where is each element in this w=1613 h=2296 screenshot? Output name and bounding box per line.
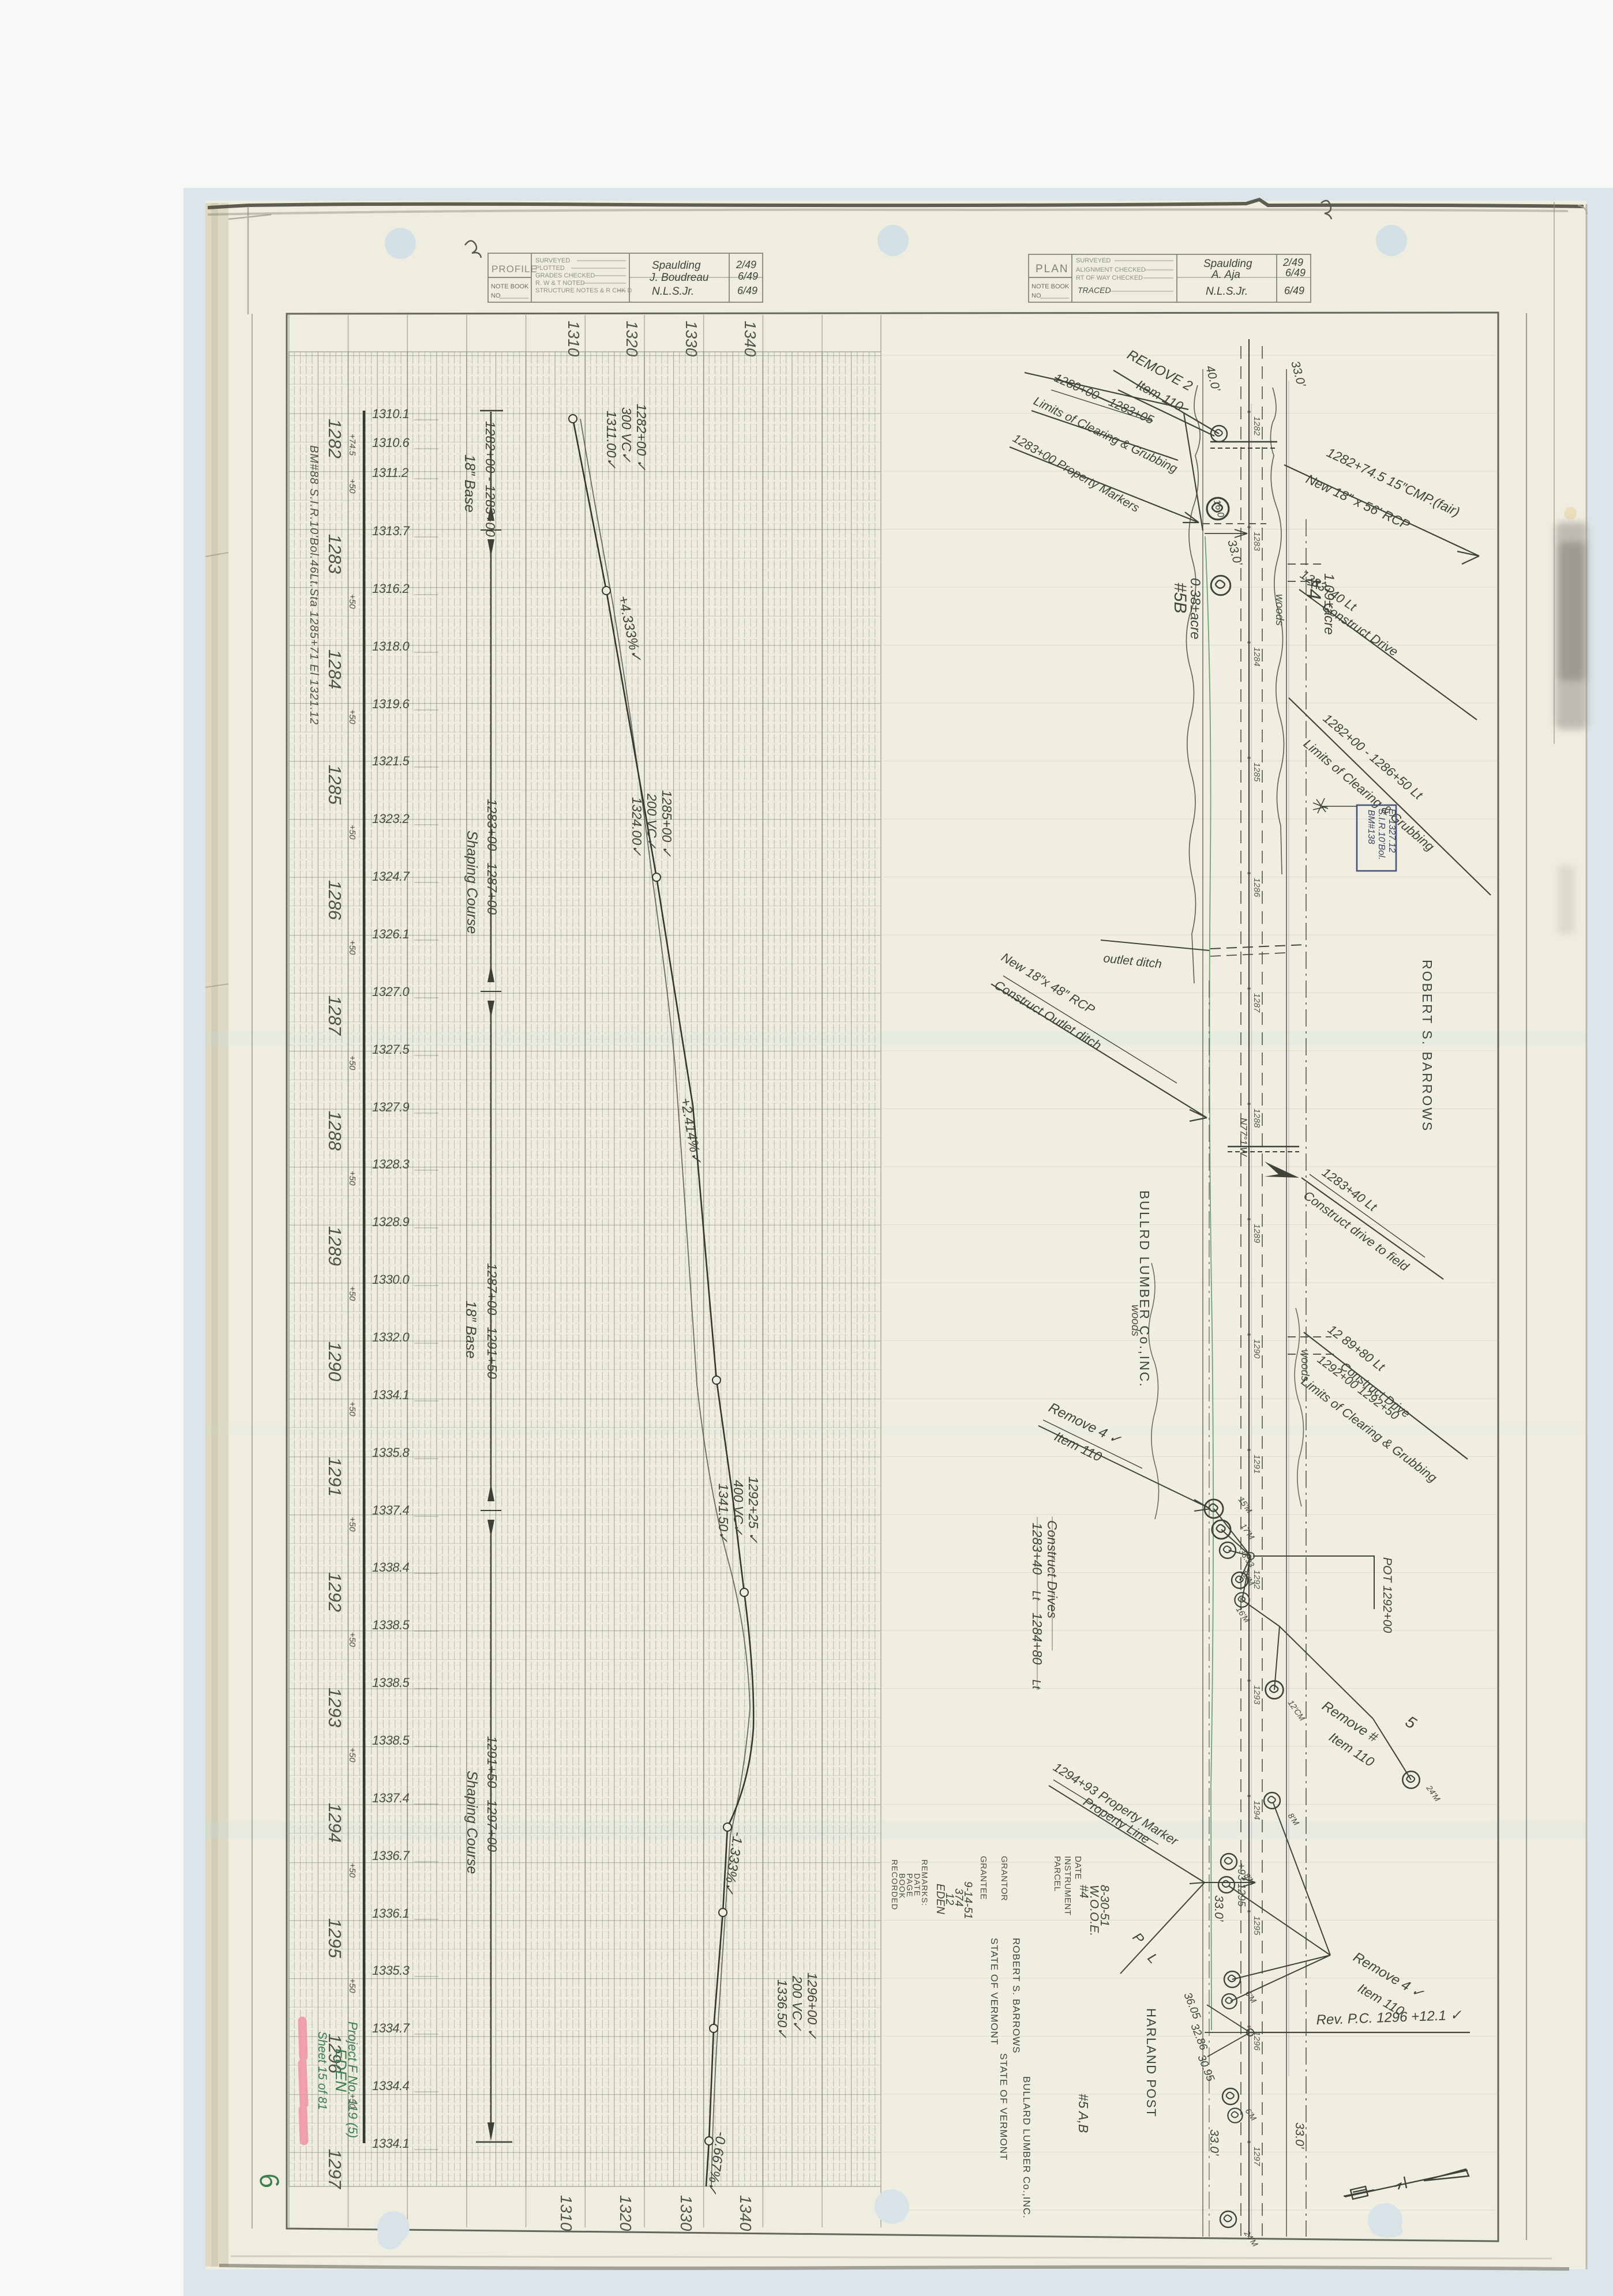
svg-text:GRANTEE: GRANTEE	[978, 1856, 988, 1900]
svg-text:1336.7: 1336.7	[372, 1848, 410, 1863]
svg-text:+50: +50	[347, 709, 357, 724]
svg-text:1294: 1294	[1252, 1801, 1262, 1820]
svg-text:STATE OF VERMONT: STATE OF VERMONT	[998, 2053, 1009, 2160]
svg-text:Spaulding: Spaulding	[652, 260, 701, 272]
svg-text:1336.50✓: 1336.50✓	[775, 1979, 790, 2038]
svg-text:1282: 1282	[1252, 416, 1262, 436]
svg-text:1297: 1297	[325, 2149, 345, 2190]
svg-text:1335.3: 1335.3	[372, 1963, 410, 1978]
svg-text:1338.5: 1338.5	[372, 1618, 410, 1632]
svg-text:El 1327.12: El 1327.12	[1387, 809, 1397, 853]
svg-text:1285: 1285	[1252, 762, 1262, 782]
svg-text:S.I.R.10’Bol.: S.I.R.10’Bol.	[1376, 809, 1386, 860]
svg-text:1338.5: 1338.5	[372, 1675, 410, 1690]
svg-text:1334.1: 1334.1	[372, 2136, 409, 2151]
svg-text:+50: +50	[347, 1748, 357, 1763]
svg-text:SURVEYED: SURVEYED	[535, 257, 570, 264]
svg-text:J. Boudreau: J. Boudreau	[649, 272, 709, 284]
svg-text:6/49: 6/49	[1284, 285, 1304, 296]
svg-text:Project F No. 119 (5): Project F No. 119 (5)	[346, 2021, 360, 2138]
svg-text:1320: 1320	[623, 321, 641, 357]
svg-text:POT 1292+00: POT 1292+00	[1381, 1557, 1394, 1633]
svg-text:1289: 1289	[325, 1226, 345, 1266]
svg-text:1292: 1292	[325, 1572, 345, 1612]
svg-text:1324.00✓: 1324.00✓	[629, 797, 644, 856]
svg-text:HARLAND P‌OS‌T: HARLAND P‌OS‌T	[1144, 2008, 1158, 2117]
svg-text:1291: 1291	[1252, 1455, 1262, 1474]
svg-text:BM#1‌38: BM#1‌38	[1366, 810, 1376, 844]
svg-text:1.09±acre: 1.09±acre	[1321, 573, 1337, 635]
svg-text:+74.5: +74.5	[347, 434, 357, 456]
svg-text:+50: +50	[347, 1171, 357, 1186]
svg-text:1295: 1295	[325, 1918, 345, 1959]
svg-text:1335.8: 1335.8	[372, 1445, 410, 1460]
svg-text:8-30-51: 8-30-51	[1098, 1885, 1111, 1926]
svg-text:Shaping Course: Shaping Course	[464, 1771, 480, 1874]
svg-text:Lt: Lt	[1030, 1679, 1042, 1690]
svg-text:1283+00 - 1287+00: 1283+00 - 1287+00	[485, 799, 500, 915]
svg-text:Sheet 15 of 81: Sheet 15 of 81	[316, 2031, 329, 2110]
svg-text:1337.4: 1337.4	[372, 1503, 410, 1517]
svg-text:1287: 1287	[325, 995, 345, 1036]
svg-text:1282: 1282	[325, 419, 345, 459]
svg-text:1338.4: 1338.4	[372, 1560, 410, 1574]
svg-text:200 VC✓: 200 VC✓	[790, 1975, 805, 2031]
svg-text:1310: 1310	[565, 321, 583, 357]
svg-text:1326.1: 1326.1	[372, 927, 409, 941]
svg-text:1330: 1330	[677, 2195, 695, 2231]
svg-text:ROBERT S. BARROWS: ROBERT S. BARROWS	[1011, 1938, 1022, 2054]
svg-text:1320: 1320	[617, 2195, 635, 2231]
svg-text:1289: 1289	[1252, 1224, 1262, 1243]
svg-text:TRACED: TRACED	[1078, 285, 1111, 295]
svg-text:6/49: 6/49	[1285, 267, 1306, 279]
svg-text:1328.9: 1328.9	[372, 1215, 410, 1229]
svg-text:GRANTOR: GRANTOR	[999, 1856, 1009, 1901]
svg-text:400 VC✓: 400 VC✓	[731, 1480, 746, 1535]
svg-text:1337.4: 1337.4	[372, 1791, 410, 1805]
svg-text:1340: 1340	[737, 2195, 755, 2231]
svg-text:BULLARD LUMBER Co.,INC.: BULLARD LUMBER Co.,INC.	[1021, 2076, 1032, 2219]
svg-text:+93 1295: +93 1295	[1236, 1863, 1247, 1907]
svg-text:1310.6: 1310.6	[372, 435, 410, 450]
svg-text:BUL‌L‌RD LUMBER Co.,INC.: BUL‌L‌RD LUMBER Co.,INC.	[1137, 1190, 1152, 1388]
svg-text:1310.1: 1310.1	[372, 407, 409, 421]
svg-text:1327.9: 1327.9	[372, 1100, 410, 1114]
svg-text:1327.5: 1327.5	[372, 1042, 410, 1057]
svg-text:1313.7: 1313.7	[372, 524, 410, 538]
svg-text:1291+50 - 1297+00: 1291+50 - 1297+00	[485, 1736, 500, 1852]
svg-text:1284: 1284	[1252, 647, 1262, 666]
svg-text:1295: 1295	[1252, 1916, 1262, 1936]
svg-text:1290: 1290	[1252, 1339, 1262, 1359]
svg-text:1330.0: 1330.0	[372, 1272, 410, 1287]
svg-text:1287+00 - 1291+50: 1287+00 - 1291+50	[485, 1263, 500, 1379]
svg-text:6/49: 6/49	[738, 270, 758, 282]
svg-text:6/49: 6/49	[737, 285, 757, 296]
svg-text:PROFILE: PROFILE	[492, 264, 538, 275]
svg-text:#5 A,B: #5 A,B	[1076, 2094, 1091, 2133]
svg-text:woods: woods	[1273, 594, 1285, 626]
svg-text:+50: +50	[347, 1863, 357, 1878]
svg-text:1296+00 ✓: 1296+00 ✓	[805, 1972, 820, 2039]
svg-text:2/49: 2/49	[1282, 257, 1303, 268]
svg-text:1290: 1290	[325, 1341, 345, 1381]
svg-text:1319.6: 1319.6	[372, 697, 410, 711]
svg-text:PLOTTED: PLOTTED	[535, 265, 565, 272]
svg-text:1336.1: 1336.1	[372, 1906, 409, 1921]
svg-text:PARCEL: PARCEL	[1052, 1856, 1062, 1892]
svg-text:1334.1: 1334.1	[372, 1388, 409, 1402]
svg-text:1282+00 ✓: 1282+00 ✓	[634, 404, 649, 471]
svg-text:1324.7: 1324.7	[372, 869, 410, 884]
svg-text:A. Aja: A. Aja	[1211, 269, 1240, 281]
svg-text:1287: 1287	[1252, 993, 1262, 1013]
svg-text:NOTE BOOK: NOTE BOOK	[491, 283, 529, 290]
svg-text:1282+00 - 1283+00: 1282+00 - 1283+00	[483, 421, 498, 537]
svg-text:NO: NO	[491, 292, 501, 299]
svg-text:GRADES CHECKED: GRADES CHECKED	[535, 272, 595, 279]
svg-text:1311.2: 1311.2	[372, 465, 408, 480]
svg-text:1334.7: 1334.7	[372, 2021, 410, 2035]
svg-text:18″ Base: 18″ Base	[463, 1301, 479, 1359]
svg-text:N.L.S.Jr.: N.L.S.Jr.	[652, 285, 694, 298]
svg-text:0.38±acre: 0.38±acre	[1187, 578, 1203, 640]
svg-text:R. W & T NOTED: R. W & T NOTED	[535, 280, 585, 287]
svg-text:+50: +50	[347, 1632, 357, 1647]
svg-text:2/49: 2/49	[736, 259, 756, 270]
svg-text:1297: 1297	[1252, 2147, 1262, 2166]
svg-text:1291: 1291	[325, 1457, 345, 1497]
svg-text:1330: 1330	[682, 321, 700, 357]
svg-text:1310: 1310	[557, 2195, 575, 2231]
svg-text:1341.50✓: 1341.50✓	[716, 1483, 731, 1542]
svg-text:200 VC✓: 200 VC✓	[644, 793, 659, 849]
svg-text:ALIGNMENT CHECKED: ALIGNMENT CHECKED	[1076, 266, 1146, 273]
svg-text:1283: 1283	[1252, 532, 1262, 551]
svg-text:+50: +50	[347, 1517, 357, 1532]
svg-text:INSTRUMENT: INSTRUMENT	[1063, 1856, 1072, 1915]
svg-text:1292+25 ✓: 1292+25 ✓	[746, 1476, 761, 1543]
svg-text:N77°1'W: N77°1'W	[1238, 1118, 1249, 1158]
svg-text:Spaulding: Spaulding	[1203, 258, 1252, 270]
svg-text:+50: +50	[347, 940, 357, 955]
svg-text:1318.0: 1318.0	[372, 639, 410, 653]
svg-text:1293: 1293	[325, 1688, 345, 1727]
svg-text:Lt: Lt	[1030, 1591, 1042, 1601]
svg-text:1311.00✓: 1311.00✓	[604, 411, 619, 469]
svg-text:N.L.S.Jr.: N.L.S.Jr.	[1206, 285, 1248, 298]
svg-text:+50: +50	[347, 825, 357, 840]
svg-text:NO: NO	[1031, 292, 1041, 299]
svg-text:300 VC✓: 300 VC✓	[619, 407, 634, 463]
svg-text:1328.3: 1328.3	[372, 1157, 410, 1171]
svg-text:1286: 1286	[1252, 878, 1262, 897]
svg-text:+50: +50	[347, 1401, 357, 1416]
svg-text:1327.0: 1327.0	[372, 984, 410, 999]
svg-text:33.0’: 33.0’	[1293, 2122, 1306, 2149]
svg-text:1340: 1340	[741, 321, 759, 357]
svg-text:1286: 1286	[325, 880, 345, 920]
svg-text:33.0’: 33.0’	[1207, 2129, 1221, 2156]
svg-text:1316.2: 1316.2	[372, 581, 410, 596]
svg-text:Shaping Course: Shaping Course	[464, 831, 480, 934]
svg-text:1332.0: 1332.0	[372, 1330, 410, 1344]
svg-text:33.0’: 33.0’	[1212, 1895, 1225, 1922]
svg-text:REMARKS:: REMARKS:	[920, 1859, 929, 1906]
svg-text:#5B: #5B	[1171, 583, 1190, 613]
svg-text:NOTE BOOK: NOTE BOOK	[1031, 283, 1070, 290]
svg-text:+50: +50	[347, 479, 357, 494]
svg-text:18″ Base: 18″ Base	[462, 454, 478, 513]
svg-text:1321.5: 1321.5	[372, 754, 410, 768]
svg-text:1334.4: 1334.4	[372, 2079, 410, 2093]
svg-text:RT OF WAY CHECKED: RT OF WAY CHECKED	[1076, 275, 1143, 281]
svg-text:1284: 1284	[325, 649, 345, 689]
svg-text:+50: +50	[347, 1055, 357, 1070]
svg-text:1294: 1294	[325, 1803, 345, 1843]
svg-text:1285+00 ✓: 1285+00 ✓	[659, 790, 674, 857]
svg-text:1338.5: 1338.5	[372, 1733, 410, 1748]
svg-text:DATE: DATE	[1073, 1856, 1083, 1880]
svg-text:BM#88 S.I.R.10'Bol.46Lt.Sta 12: BM#88 S.I.R.10'Bol.46Lt.Sta 1285+71 El 1…	[307, 445, 320, 725]
svg-text:1288: 1288	[325, 1111, 345, 1151]
svg-text:1293: 1293	[1252, 1685, 1262, 1705]
svg-text:+50: +50	[347, 1978, 357, 1993]
svg-text:SURVEYED: SURVEYED	[1076, 257, 1111, 264]
svg-text:+50: +50	[347, 1286, 357, 1301]
svg-text:1323.2: 1323.2	[372, 811, 410, 826]
svg-text:1288: 1288	[1252, 1108, 1262, 1128]
svg-text:ROBERT S. BARROWS: ROBERT S. BARROWS	[1420, 960, 1435, 1132]
svg-text:1283: 1283	[325, 534, 345, 574]
svg-text:STATE OF VERMONT: STATE OF VERMONT	[989, 1938, 1000, 2045]
svg-text:9-14-51: 9-14-51	[962, 1881, 974, 1919]
svg-text:PLAN: PLAN	[1036, 263, 1069, 275]
svg-text:1285: 1285	[325, 765, 345, 805]
svg-text:+50: +50	[347, 594, 357, 609]
